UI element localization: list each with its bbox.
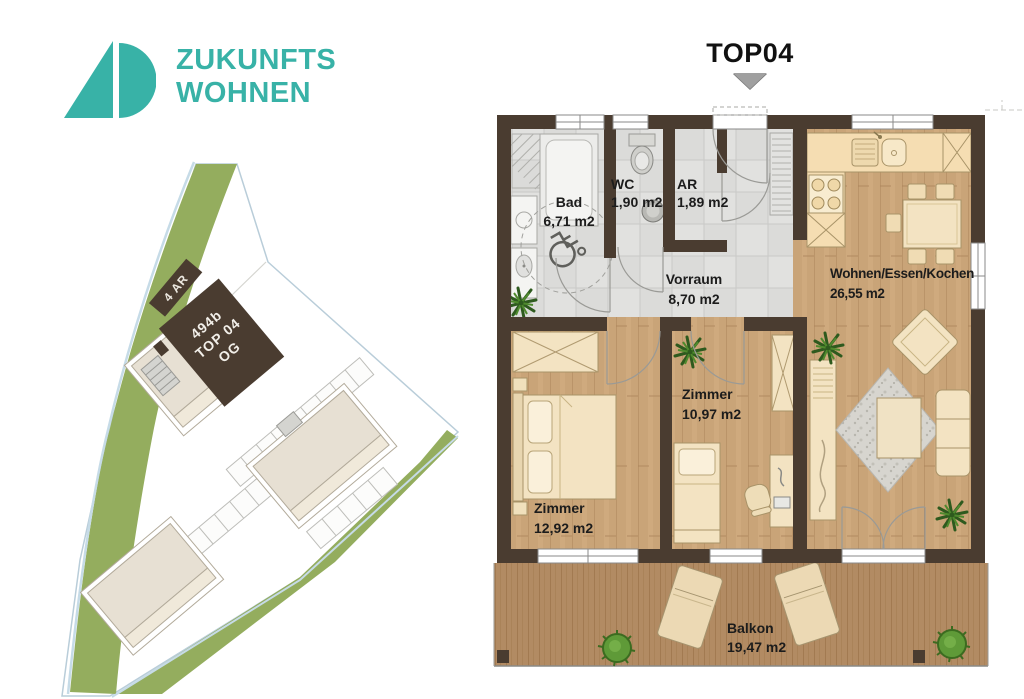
room-vorraum-label: Vorraum xyxy=(666,271,723,287)
balcony-post-left xyxy=(497,650,509,663)
logo-halfcircle-shape xyxy=(119,43,156,118)
sofa xyxy=(936,390,970,476)
unit-title-block: TOP04 xyxy=(652,38,848,89)
room-balkon-area: 19,47 m2 xyxy=(727,639,786,655)
balcony: Balkon 19,47 m2 xyxy=(494,562,988,666)
sideboard xyxy=(810,360,836,520)
room-zimmer-mid-area: 10,97 m2 xyxy=(682,406,741,422)
brand-logo-icon xyxy=(60,38,156,122)
brand-logo: ZUKUNFTS WOHNEN xyxy=(60,38,336,122)
window-zimmer-left xyxy=(538,549,638,563)
pointer-down-icon xyxy=(733,73,767,89)
logo-triangle-shape xyxy=(64,41,113,118)
room-bad-area: 6,71 m2 xyxy=(543,213,595,229)
coffee-table xyxy=(877,398,921,458)
dining-table xyxy=(903,200,961,248)
window-zimmer-mid xyxy=(710,549,762,563)
desk xyxy=(770,455,794,527)
floor-plan: Balkon 19,47 m2 xyxy=(480,100,1024,699)
washing-machine xyxy=(511,196,537,244)
wardrobe-middle xyxy=(772,335,794,411)
window-bad xyxy=(556,115,604,129)
logo-word-2: WOHNEN xyxy=(176,77,336,110)
room-wohnen-label: Wohnen/Essen/Kochen xyxy=(830,266,974,281)
kitchen-lower-unit xyxy=(807,213,845,247)
washbasin xyxy=(511,248,537,298)
logo-word-1: ZUKUNFTS xyxy=(176,44,336,77)
page: ZUKUNFTS WOHNEN TOP04 xyxy=(0,0,1024,699)
balcony-post-right xyxy=(913,650,925,663)
room-vorraum-area: 8,70 m2 xyxy=(668,291,720,307)
room-wc-area: 1,90 m2 xyxy=(611,194,663,210)
window-wc xyxy=(613,115,648,129)
french-door-balcony xyxy=(842,549,925,563)
vorraum-niche xyxy=(770,133,793,215)
room-wohnen-area: 26,55 m2 xyxy=(830,286,885,301)
unit-title: TOP04 xyxy=(652,38,848,69)
room-ar-area: 1,89 m2 xyxy=(677,194,729,210)
room-balkon-label: Balkon xyxy=(727,620,774,636)
window-kitchen xyxy=(852,115,933,129)
wardrobe-left xyxy=(513,332,598,372)
room-wc-label: WC xyxy=(611,176,634,192)
room-zimmer-left-area: 12,92 m2 xyxy=(534,520,593,536)
room-zimmer-mid-label: Zimmer xyxy=(682,386,733,402)
plot-boundary-lines xyxy=(985,100,1024,110)
site-plan: 494b TOP 04 OG 4 AR xyxy=(35,155,465,699)
single-bed xyxy=(674,443,720,543)
toilet-tank xyxy=(629,134,655,146)
stove xyxy=(809,175,843,213)
room-bad-label: Bad xyxy=(556,194,582,210)
room-zimmer-left-label: Zimmer xyxy=(534,500,585,516)
room-ar-label: AR xyxy=(677,176,697,192)
brand-logo-text: ZUKUNFTS WOHNEN xyxy=(176,44,336,110)
entry-opening xyxy=(713,107,767,129)
kitchen-tall-unit xyxy=(943,133,971,172)
double-bed xyxy=(513,378,616,515)
